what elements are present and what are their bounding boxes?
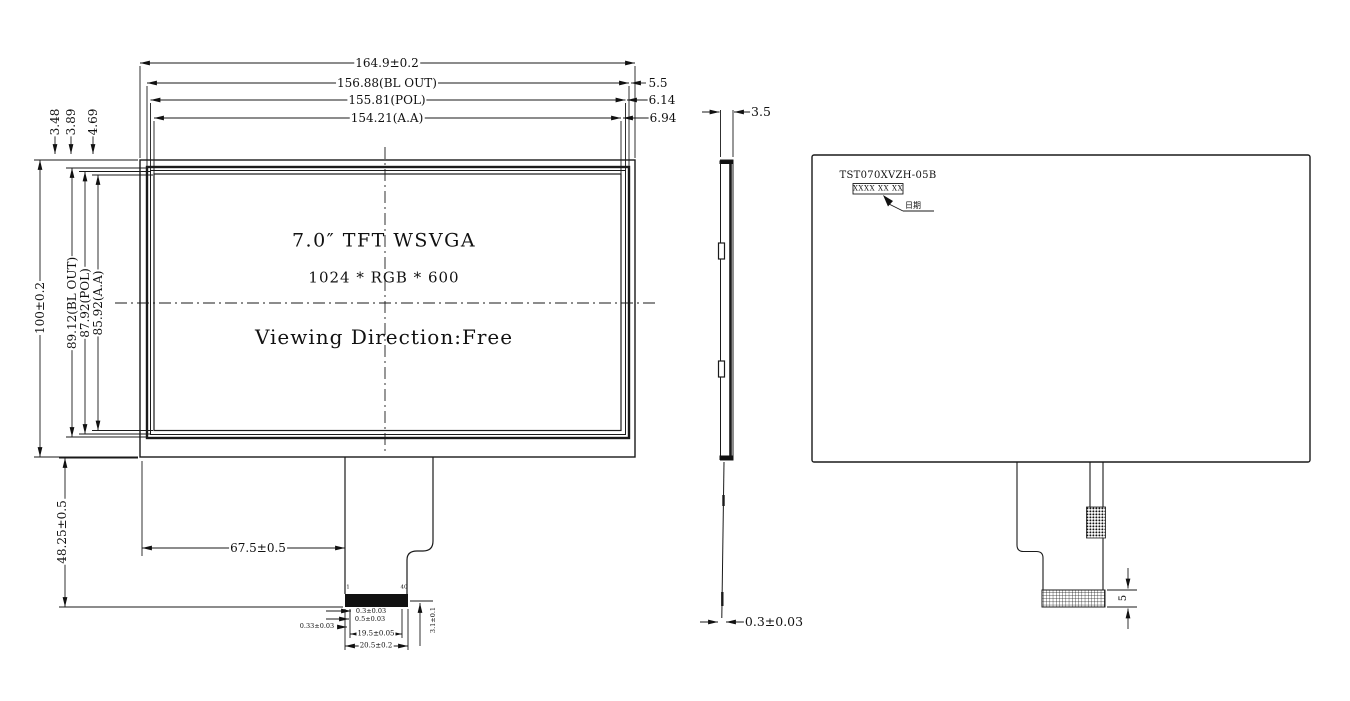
front-dimensions: [34, 63, 650, 650]
dim-top-gap-pol: 3.89: [65, 108, 77, 137]
front-bl-out-outline: [147, 167, 629, 438]
date-code: XXXX XX XX: [852, 185, 904, 192]
front-fpc-contacts: [345, 594, 408, 607]
dim-pol-height: 87.92(POL): [79, 267, 91, 339]
dim-right-gap-aa: 6.94: [649, 112, 678, 124]
back-fpc-stiffener: [1087, 507, 1106, 538]
dim-fpc-width: 20.5±0.2: [359, 643, 394, 650]
dim-top-gap-aa: 4.69: [87, 108, 99, 137]
side-latch-lower: [719, 361, 725, 377]
date-label: 日期: [904, 202, 922, 210]
dim-top-gap-bl: 3.48: [49, 108, 61, 137]
dim-fpc-contact-span: 19.5±0.05: [356, 630, 395, 637]
dim-fpc-pitch: 0.5±0.03: [354, 616, 386, 623]
pin-1-label: 1: [345, 585, 351, 591]
dim-connector-height: 5: [1119, 594, 1129, 602]
part-number: TST070XVZH-05B: [839, 171, 938, 181]
display-resolution: 1024 * RGB * 600: [307, 271, 460, 286]
back-connector: [1042, 590, 1105, 607]
dim-bl-out-width: 156.88(BL OUT): [336, 77, 438, 89]
dim-overall-height: 100±0.2: [34, 281, 46, 335]
side-view: [719, 160, 734, 618]
front-view: [115, 147, 658, 607]
engineering-drawing: 164.9±0.2 156.88(BL OUT) 155.81(POL) 154…: [0, 0, 1350, 701]
side-top-cap: [720, 161, 734, 165]
front-tail-right-edge: [407, 457, 433, 594]
side-bottom-cap: [720, 456, 734, 461]
dim-aa-width: 154.21(A.A): [350, 112, 425, 124]
front-pol-outline: [151, 171, 626, 435]
dim-side-fpc-thickness: 0.3±0.03: [744, 616, 804, 629]
dim-bl-out-height: 89.12(BL OUT): [66, 256, 78, 350]
side-dimensions: [700, 110, 752, 622]
front-module-outline: [140, 160, 635, 457]
dim-fpc-edge-margin: 0.33±0.03: [299, 623, 335, 630]
dim-right-gap-pol: 6.14: [648, 94, 677, 106]
dim-overall-width: 164.9±0.2: [354, 57, 420, 69]
viewing-direction: Viewing Direction:Free: [254, 327, 514, 347]
dim-tail-length: 48.25±0.5: [56, 499, 68, 565]
back-tail-step: [1017, 462, 1043, 590]
back-view: [812, 155, 1310, 607]
pin-40-label: 40: [400, 585, 409, 591]
side-latch-upper: [719, 243, 725, 259]
dim-fpc-stiffener-height: 3.1±0.1: [430, 606, 437, 634]
dim-tail-offset: 67.5±0.5: [229, 542, 287, 554]
front-active-area-outline: [154, 174, 621, 431]
date-leader-line: [889, 204, 903, 211]
dim-right-gap-bl: 5.5: [647, 77, 668, 89]
dim-fpc-contact-width: 0.3±0.03: [355, 608, 387, 615]
dim-aa-height: 85.92(A.A): [92, 270, 104, 337]
display-title: 7.0″ TFT WSVGA: [291, 232, 477, 251]
dim-pol-width: 155.81(POL): [347, 94, 426, 106]
dim-side-thickness: 3.5: [750, 106, 772, 119]
